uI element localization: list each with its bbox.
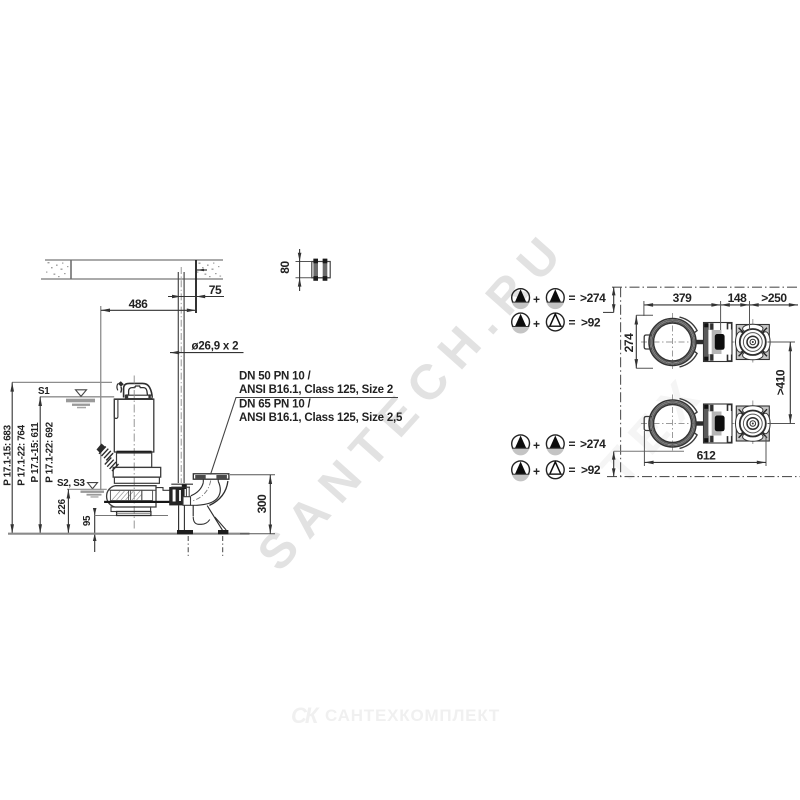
svg-text:379: 379 <box>673 291 693 305</box>
svg-text:+: + <box>533 439 540 453</box>
svg-text:=: = <box>569 315 576 329</box>
svg-text:148: 148 <box>728 291 748 305</box>
svg-text:>274: >274 <box>580 437 606 451</box>
svg-text:ANSI B16.1, Class 125, Size 2,: ANSI B16.1, Class 125, Size 2,5 <box>239 412 403 424</box>
svg-text:+: + <box>533 293 540 307</box>
svg-text:95: 95 <box>82 515 93 526</box>
svg-text:612: 612 <box>697 449 717 463</box>
svg-text:>410: >410 <box>774 369 788 395</box>
svg-text:P 17.1-15: 611: P 17.1-15: 611 <box>30 422 41 483</box>
svg-text:DN 50 PN 10 /: DN 50 PN 10 / <box>239 371 312 383</box>
svg-text:>250: >250 <box>761 291 787 305</box>
svg-text:S2, S3: S2, S3 <box>57 478 85 489</box>
svg-text:DN 65 PN 10 /: DN 65 PN 10 / <box>239 399 312 411</box>
svg-text:=: = <box>569 437 576 451</box>
svg-text:САНТЕХКОМПЛЕКТ: САНТЕХКОМПЛЕКТ <box>325 706 500 725</box>
svg-text:+: + <box>533 317 540 331</box>
svg-text:ø26,9 x 2: ø26,9 x 2 <box>192 341 239 353</box>
svg-text:>92: >92 <box>581 315 601 329</box>
svg-text:P 17.1-15: 683: P 17.1-15: 683 <box>3 424 14 485</box>
svg-text:СК: СК <box>291 703 320 728</box>
svg-text:300: 300 <box>255 494 269 514</box>
svg-text:486: 486 <box>129 297 149 311</box>
svg-text:274: 274 <box>622 333 636 353</box>
svg-text:75: 75 <box>209 283 222 297</box>
svg-text:P 17.1-22: 764: P 17.1-22: 764 <box>17 424 28 485</box>
svg-text:S1: S1 <box>38 386 50 397</box>
svg-text:=: = <box>569 463 576 477</box>
svg-text:226: 226 <box>57 498 68 514</box>
svg-text:=: = <box>569 291 576 305</box>
svg-text:>92: >92 <box>581 463 601 477</box>
svg-text:P 17.1-22: 692: P 17.1-22: 692 <box>45 421 56 482</box>
svg-text:ANSI B16.1, Class 125, Size 2: ANSI B16.1, Class 125, Size 2 <box>239 384 393 396</box>
svg-text:80: 80 <box>278 261 292 274</box>
svg-text:>274: >274 <box>580 291 606 305</box>
svg-text:+: + <box>533 465 540 479</box>
